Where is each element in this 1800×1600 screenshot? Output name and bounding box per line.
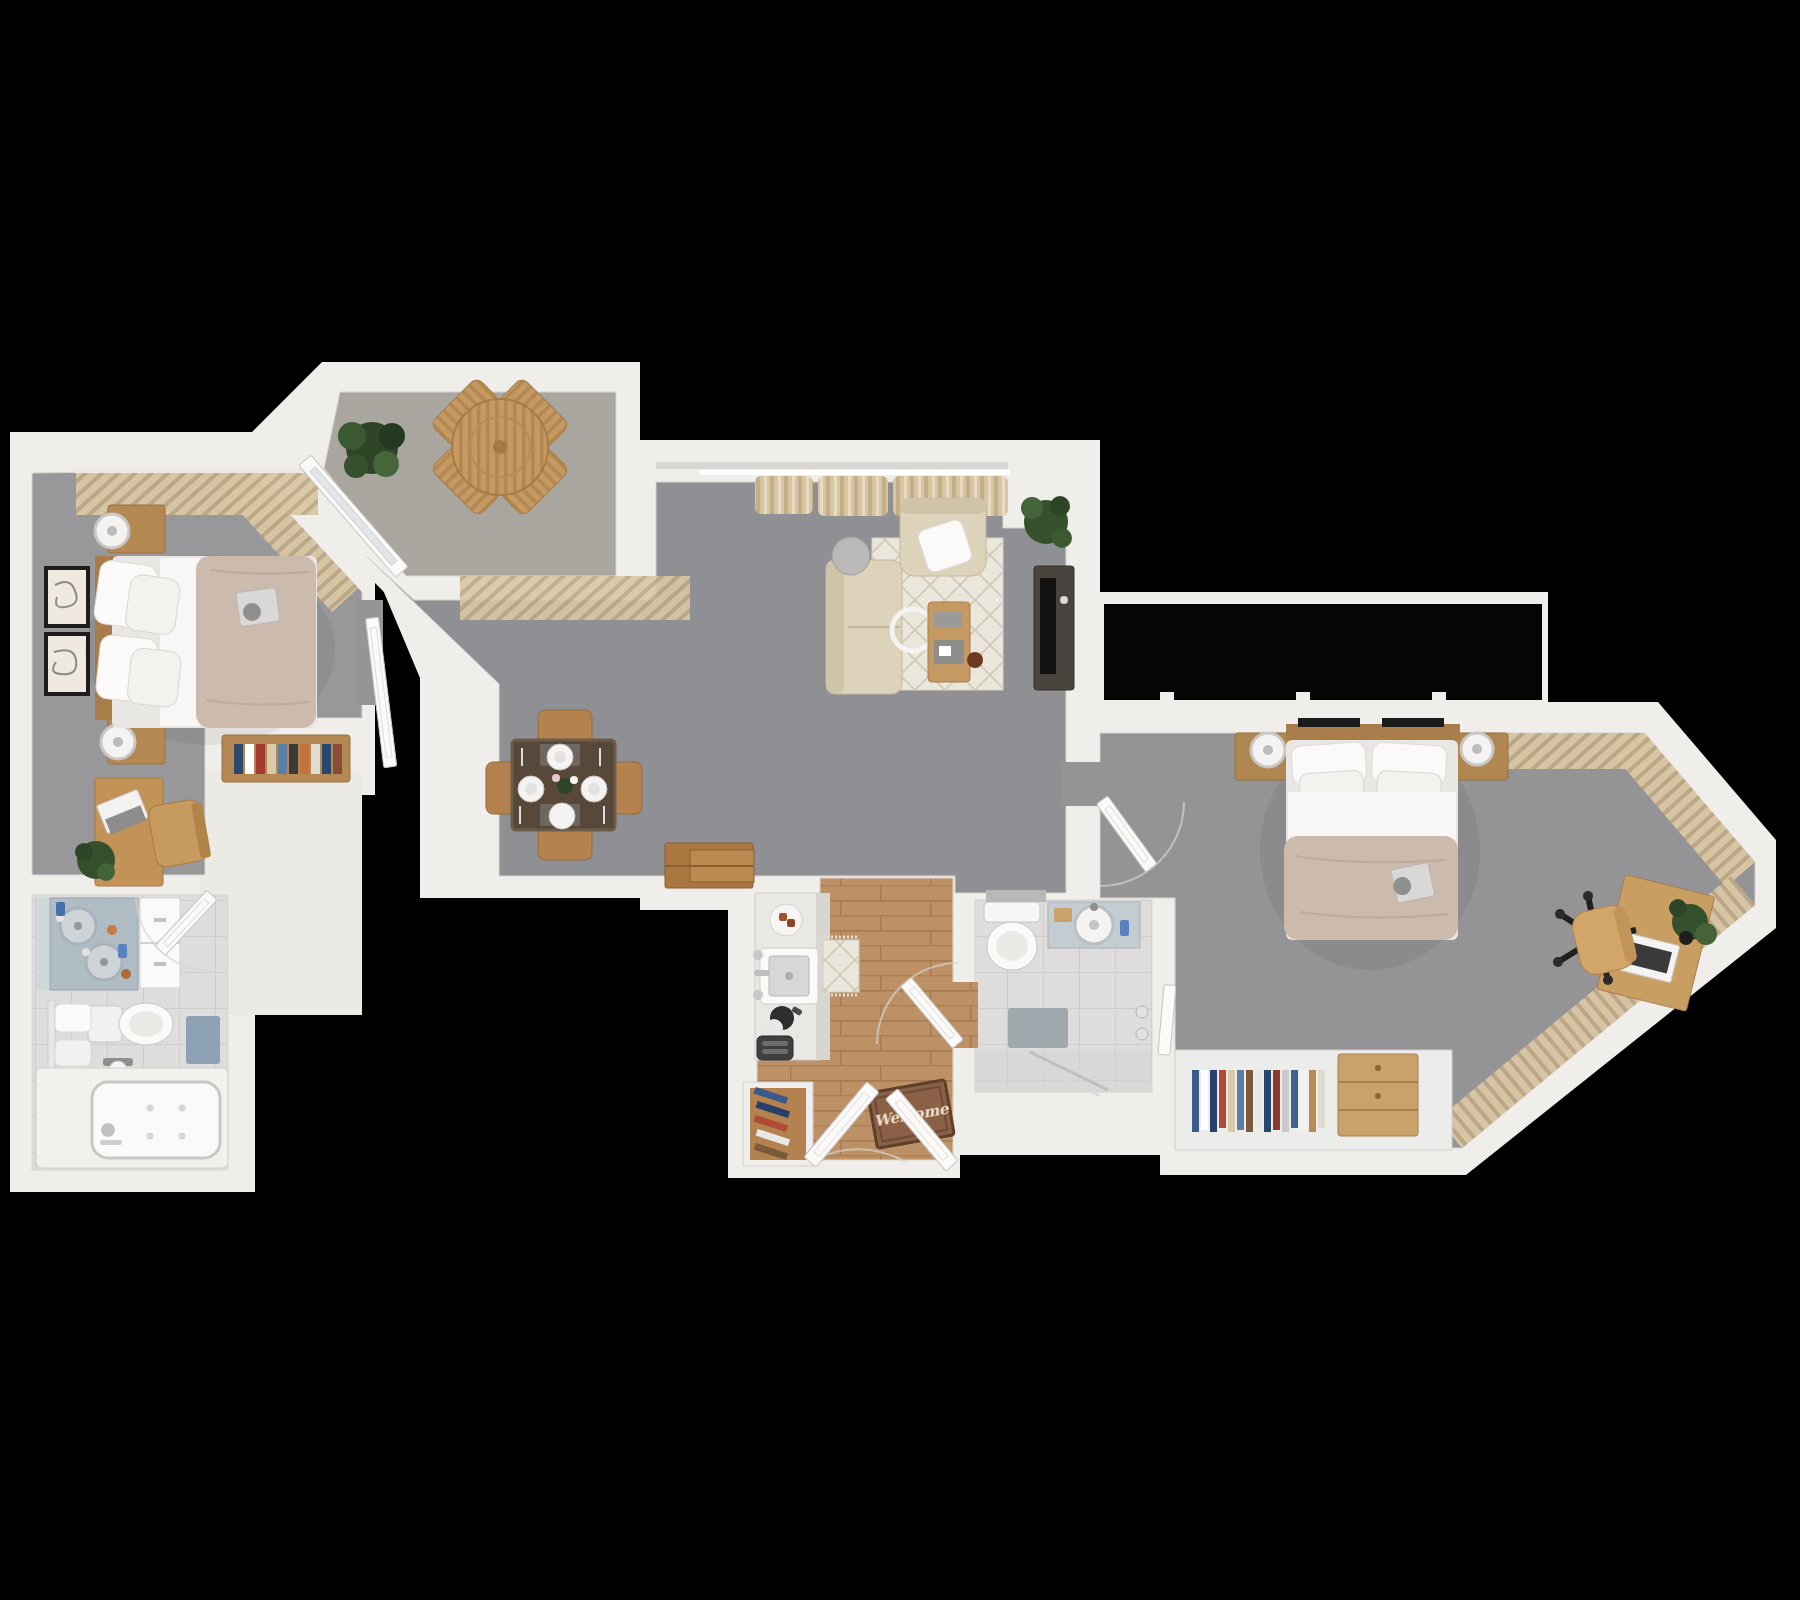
book (322, 744, 331, 774)
bowl (967, 652, 983, 668)
runner-rug (823, 940, 859, 992)
headboard-frame (1298, 718, 1360, 727)
window-frame (656, 462, 1008, 469)
faucet-spout (754, 970, 770, 976)
tub-faucet (101, 1123, 115, 1137)
sofa-back (826, 560, 844, 694)
clothing-item (1300, 1070, 1307, 1130)
clothing-item (1228, 1070, 1235, 1132)
croissant (787, 919, 795, 927)
art-frame-icon (46, 568, 88, 626)
drawer-knob (1375, 1093, 1381, 1099)
hanging-clothes (1192, 1070, 1325, 1132)
bath-mat (186, 1016, 220, 1064)
clothing-item (1237, 1070, 1244, 1130)
clothing-item (1291, 1070, 1298, 1128)
side-table (832, 537, 870, 575)
plant-leaf (338, 422, 366, 450)
clothing-item (1264, 1070, 1271, 1132)
bathroom2-vanity (1048, 902, 1140, 948)
kitchen-sink (753, 948, 818, 1004)
clothing-item (1246, 1070, 1253, 1132)
drain (74, 922, 82, 930)
toaster-body (757, 1036, 793, 1060)
saucer (765, 1019, 783, 1037)
toilet-tank (984, 902, 1040, 922)
plate-inner (525, 783, 537, 795)
clothing-item (1219, 1070, 1226, 1128)
book (289, 744, 298, 774)
mirror-center (113, 737, 123, 747)
handle (154, 918, 166, 922)
caster (1555, 909, 1565, 919)
tub-jet (179, 1133, 186, 1140)
window-mullion (1432, 692, 1446, 704)
wood-tray (1054, 908, 1072, 922)
books-on-table (934, 612, 962, 628)
art-frame-icon (46, 634, 88, 694)
book (311, 744, 320, 774)
clothing-item (1318, 1070, 1325, 1128)
plate-inner (554, 751, 566, 763)
bedroom2-door-threshold (1062, 762, 1104, 806)
book (245, 744, 254, 774)
shoe-rack (743, 1082, 813, 1166)
clothing-item (1255, 1070, 1262, 1128)
tv-icon (1040, 578, 1056, 674)
lamp-center (1263, 745, 1273, 755)
tub-spout (100, 1140, 122, 1145)
clothing-item (1273, 1070, 1280, 1130)
clothing-item (1282, 1070, 1289, 1132)
faucet (82, 948, 90, 956)
headboard-frame (1382, 718, 1444, 727)
lamp-center (1472, 744, 1482, 754)
bedroom2-window-band (1104, 604, 1542, 704)
clothing-item (1309, 1070, 1316, 1132)
blue-bottle (118, 944, 127, 958)
armchair (900, 498, 986, 576)
plant-leaf (344, 454, 368, 478)
floor-plan-svg: Welcome (0, 0, 1800, 1600)
tub-jet (179, 1105, 186, 1112)
double-vanity (36, 898, 138, 990)
plant-leaf (1052, 528, 1072, 548)
plant-leaf (1050, 496, 1070, 516)
media-console (1034, 566, 1074, 690)
window-glass (1104, 604, 1542, 700)
towel (55, 1040, 91, 1066)
bathroom2-shower-floor (975, 1050, 1152, 1092)
bathtub (36, 1068, 228, 1168)
clothing-item (1192, 1070, 1199, 1132)
faucet-handle (753, 990, 763, 1000)
plate (549, 803, 575, 829)
toaster-slot (762, 1041, 788, 1046)
clothing-item (1210, 1070, 1217, 1132)
book (267, 744, 276, 774)
caster (1603, 975, 1613, 985)
curtain-rod (700, 470, 1010, 475)
plant-leaf (379, 423, 405, 449)
sheet-fold (1288, 792, 1456, 840)
soap-bar (107, 925, 117, 935)
drain (785, 972, 793, 980)
plant-leaf (75, 843, 93, 861)
caster (1583, 891, 1593, 901)
toilet-seat (129, 1011, 163, 1037)
toilet-tank (88, 1006, 122, 1042)
console-item (1060, 596, 1068, 604)
dresser (1338, 1054, 1418, 1136)
book (278, 744, 287, 774)
plant-leaf (1695, 923, 1717, 945)
tub-jet (147, 1133, 154, 1140)
wooden-crates (665, 843, 754, 888)
plant-leaf (1021, 497, 1043, 519)
pillow (126, 647, 182, 708)
blue-bottle (1120, 920, 1129, 936)
flower (570, 776, 578, 784)
drawer-knob (1375, 1065, 1381, 1071)
floor-plan-render: Welcome (0, 0, 1800, 1600)
tub-basin (92, 1082, 220, 1158)
bathroom1-toilet (88, 1003, 173, 1045)
plant-leaf (373, 451, 399, 477)
shower-control (1136, 1028, 1148, 1040)
armchair-back (900, 498, 986, 514)
flower (552, 774, 560, 782)
curtain-bunch (755, 476, 813, 514)
tray-item (939, 646, 951, 656)
hall-book-console (222, 735, 350, 782)
desk-chair (147, 798, 212, 869)
faucet-handle (753, 950, 763, 960)
wardrobe (1175, 1050, 1452, 1150)
faucet (1090, 903, 1098, 911)
window-mullion (1296, 692, 1310, 704)
shower-control (1136, 1006, 1148, 1018)
lamp-center (107, 526, 117, 536)
towel (55, 1004, 91, 1032)
croissant (779, 913, 787, 921)
plate-inner (588, 783, 600, 795)
book (234, 744, 243, 774)
book (300, 744, 309, 774)
table-center (493, 440, 507, 454)
camera-on-bed (243, 603, 261, 621)
plant-leaf (1669, 899, 1687, 917)
balcony-plant (338, 422, 405, 478)
plant-pot (1679, 931, 1693, 945)
blue-bottle (56, 902, 65, 916)
toilet-seat (996, 931, 1028, 961)
bath-mat (1008, 1008, 1068, 1048)
soap-bar (121, 969, 131, 979)
dining-window-curtain (460, 576, 690, 620)
bedroom1-curtain-rod (74, 468, 320, 473)
book (256, 744, 265, 774)
caster (1553, 957, 1563, 967)
book-on-bed (1390, 862, 1435, 903)
toaster-slot (762, 1049, 788, 1054)
plant-leaf (97, 863, 115, 881)
pillow (124, 573, 181, 635)
clothing-item (1201, 1070, 1208, 1130)
tub-jet (147, 1105, 154, 1112)
shelf-above-toilet (986, 890, 1046, 902)
drain (1089, 920, 1099, 930)
drain (100, 958, 108, 966)
mirror (36, 898, 50, 990)
toaster (757, 1036, 793, 1060)
window-mullion (1160, 692, 1174, 704)
book (333, 744, 342, 774)
handle (154, 962, 166, 966)
curtain-bunch (818, 476, 888, 516)
